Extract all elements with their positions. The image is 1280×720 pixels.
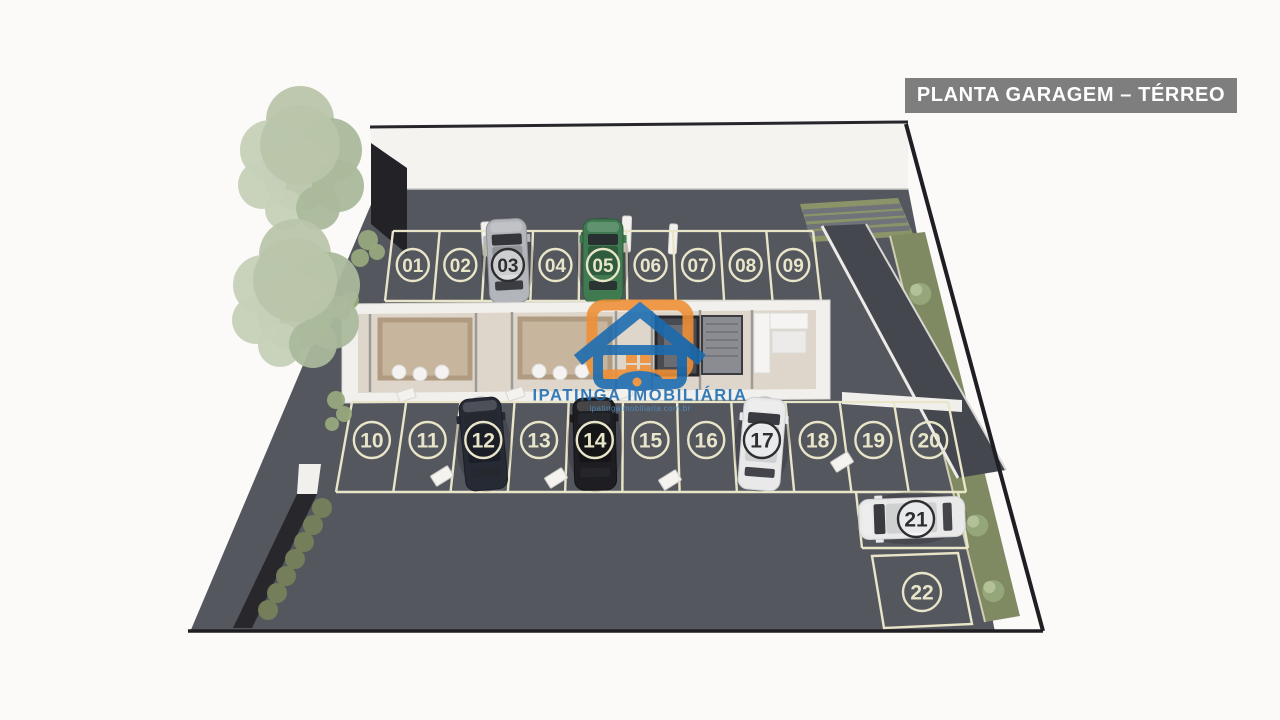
shrub (336, 406, 352, 422)
garage-plan-page: 010203040506070809 (0, 0, 1280, 720)
parking-spot-number: 11 (416, 430, 439, 453)
tree-1 (238, 86, 364, 230)
parking-spot-number: 20 (917, 430, 940, 453)
tree-2 (232, 219, 360, 368)
parking-spot-number: 10 (360, 430, 383, 453)
hedge-shrub (267, 583, 287, 603)
rear-window (942, 503, 952, 531)
shrub (325, 417, 339, 431)
parking-spot-number: 16 (695, 430, 718, 453)
windshield (492, 233, 523, 246)
garden-plant (967, 516, 979, 528)
parking-spot-number: 03 (497, 256, 518, 277)
parking-spot-number: 04 (545, 256, 567, 277)
parking-spot-number: 15 (639, 430, 663, 453)
windshield (588, 234, 618, 245)
hedge-shrub (312, 498, 332, 518)
parking-spot-number: 09 (783, 256, 804, 277)
tree-foliage (289, 320, 337, 368)
watermark-name: IPATINGA IMOBILIÁRIA (532, 385, 747, 404)
hedge-shrub (285, 549, 305, 569)
parking-spot-badge-21: 21 (898, 501, 934, 537)
rear-window (589, 281, 617, 290)
parking-spot-badge-17: 17 (744, 422, 780, 458)
parking-spot-number: 21 (904, 509, 928, 532)
title-banner: PLANTA GARAGEM – TÉRREO (905, 78, 1237, 113)
parking-spot-number: 02 (450, 256, 471, 277)
parking-spot-number: 18 (806, 430, 830, 453)
shrub (351, 249, 369, 267)
parking-spot-number: 05 (592, 256, 614, 277)
shrub (369, 244, 385, 260)
poufs-2 (532, 364, 589, 380)
garden-plant (983, 581, 995, 593)
windshield (873, 504, 885, 534)
parking-spot-number: 01 (402, 256, 424, 277)
parking-spot-number: 14 (583, 430, 607, 453)
rear-window (580, 468, 610, 478)
parking-spot-number: 13 (527, 430, 550, 453)
hedge-shrub (276, 566, 296, 586)
parking-spot-badge-03: 03 (492, 249, 524, 281)
hedge-shrub (294, 532, 314, 552)
watermark-url: ipatingaimobiliaria.com.br (589, 404, 690, 413)
garden-plant (910, 284, 922, 296)
parking-spot-number: 08 (735, 256, 756, 277)
parking-spot-number: 19 (862, 430, 885, 453)
parking-spot-number: 07 (688, 256, 709, 277)
parking-spot-number: 22 (910, 582, 933, 605)
parking-spot-number: 06 (640, 256, 661, 277)
hedge-shrub (303, 515, 323, 535)
poufs-1 (392, 365, 449, 381)
parking-spot-number: 17 (750, 430, 773, 453)
tree-foliage (253, 238, 337, 322)
hedge-shrub (258, 600, 278, 620)
tree-foliage (260, 105, 340, 185)
parking-spot-number: 12 (472, 430, 495, 453)
